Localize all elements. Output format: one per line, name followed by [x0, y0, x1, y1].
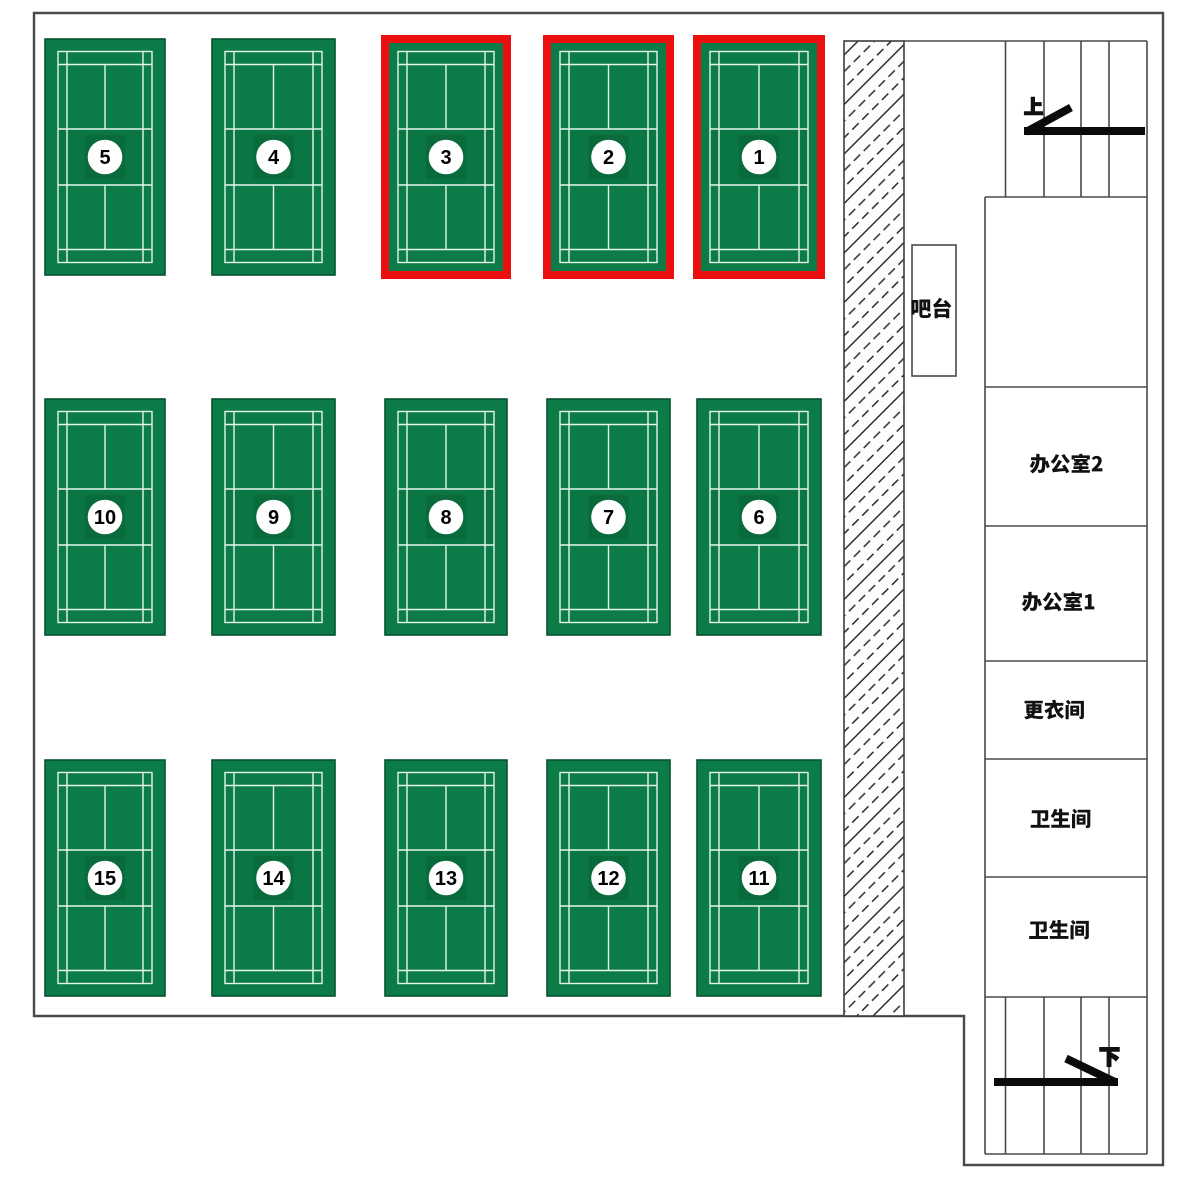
- svg-text:10: 10: [94, 507, 116, 529]
- svg-text:11: 11: [748, 868, 769, 890]
- svg-text:12: 12: [597, 868, 619, 890]
- svg-text:14: 14: [262, 868, 285, 890]
- svg-text:2: 2: [603, 147, 614, 169]
- svg-text:4: 4: [268, 147, 280, 169]
- svg-text:1: 1: [753, 147, 764, 169]
- svg-text:13: 13: [435, 868, 457, 890]
- svg-text:7: 7: [603, 507, 614, 529]
- svg-text:8: 8: [440, 507, 451, 529]
- svg-text:3: 3: [440, 147, 451, 169]
- svg-text:9: 9: [268, 507, 279, 529]
- svg-text:15: 15: [94, 868, 116, 890]
- svg-text:6: 6: [753, 507, 764, 529]
- svg-text:5: 5: [99, 147, 110, 169]
